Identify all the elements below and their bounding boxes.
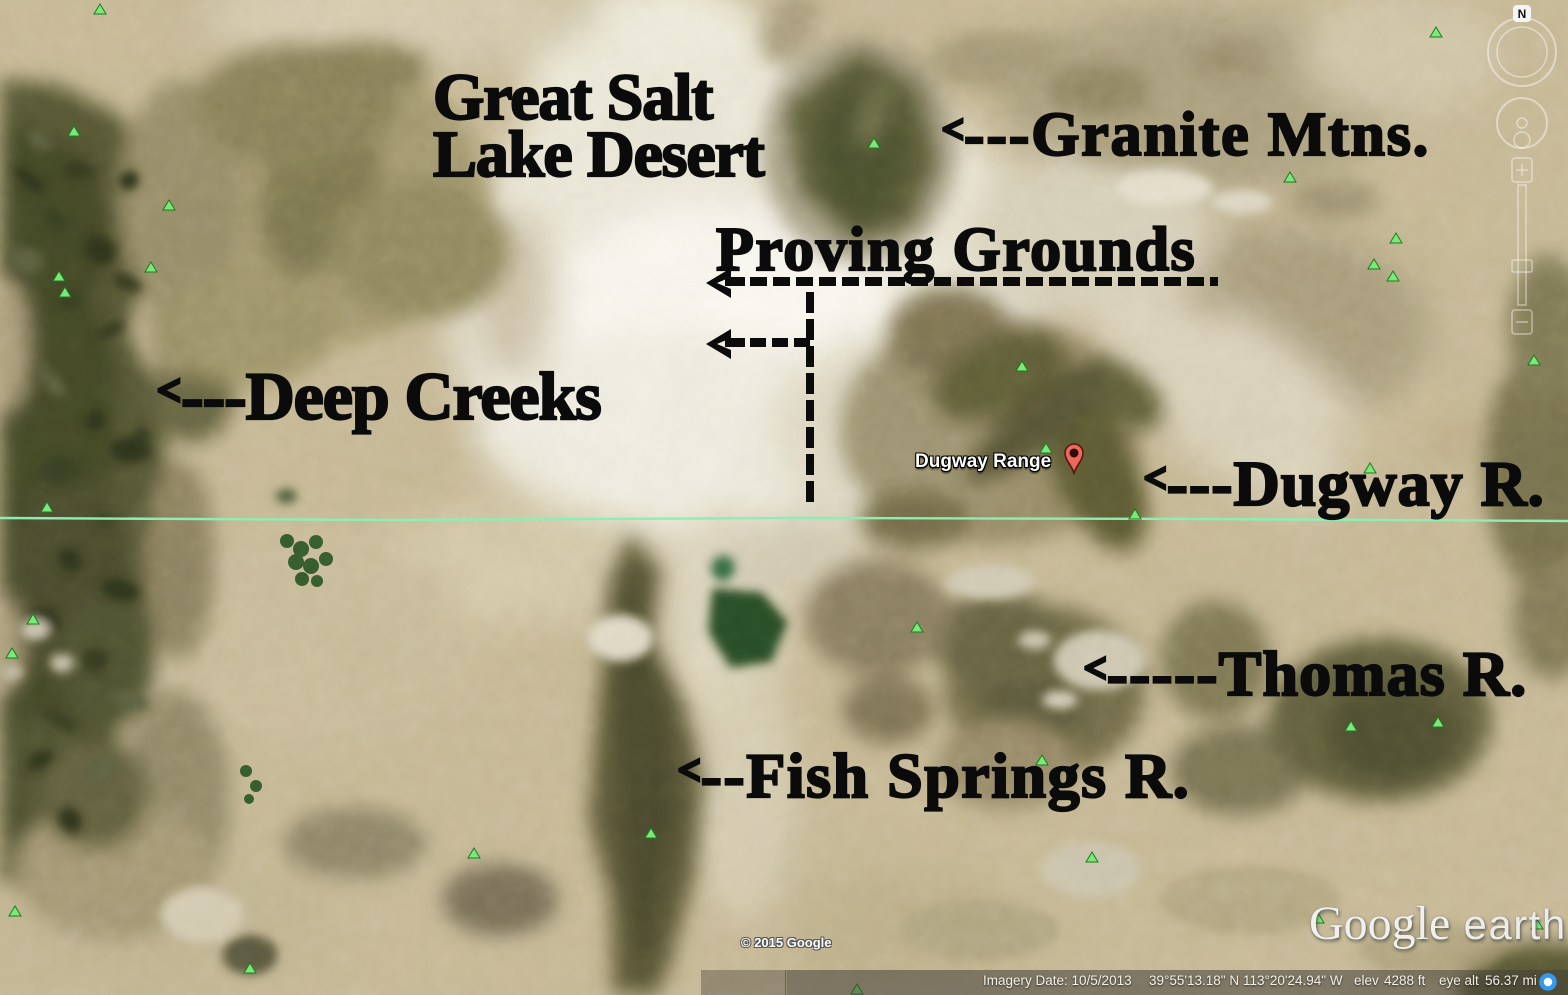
svg-text:N: N	[1518, 7, 1527, 21]
